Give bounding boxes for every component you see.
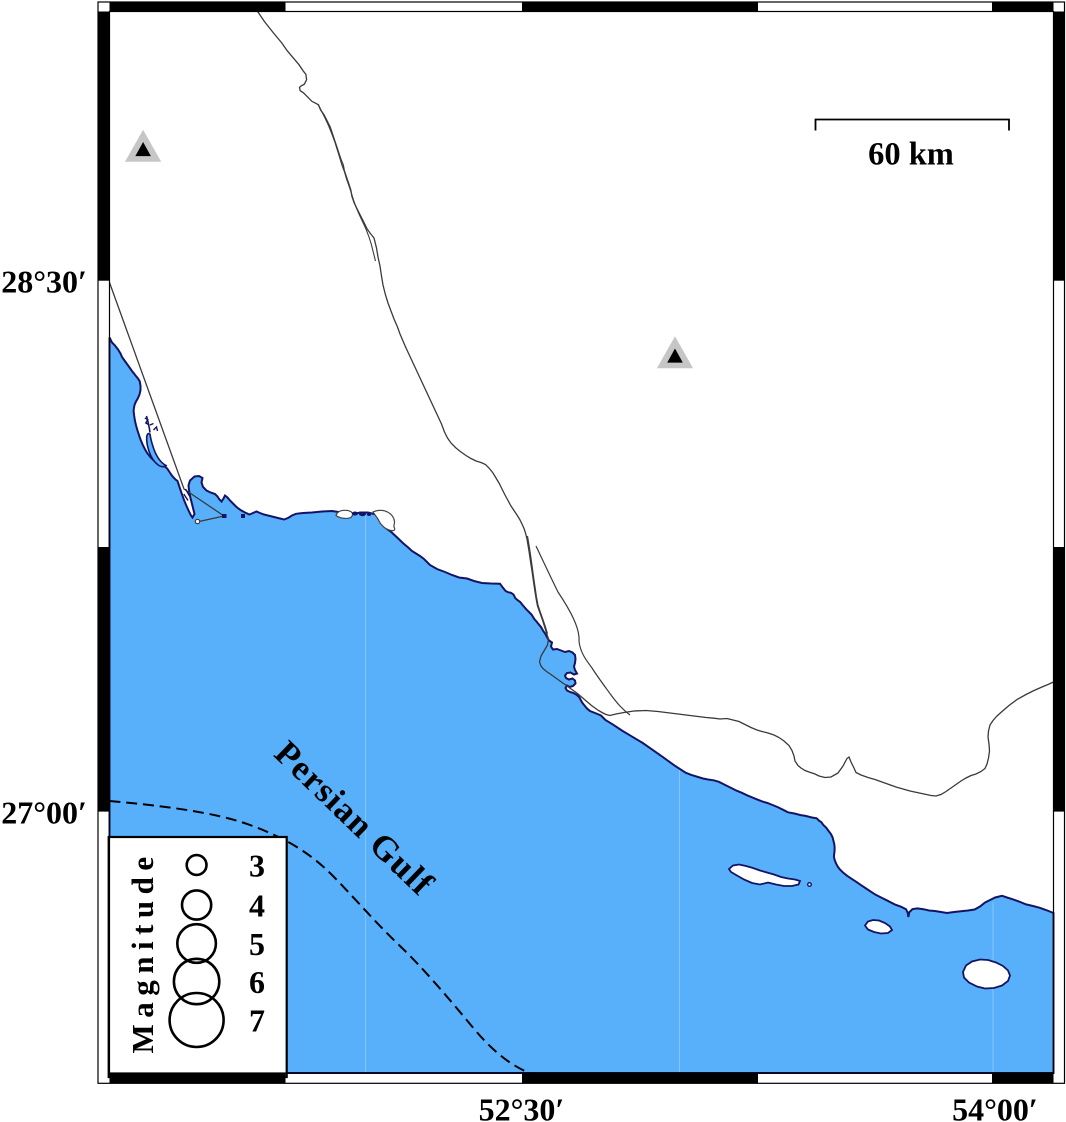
svg-text:4: 4: [249, 887, 265, 923]
svg-text:27°00′: 27°00′: [1, 795, 87, 831]
svg-text:60 km: 60 km: [868, 137, 954, 173]
svg-text:28°30′: 28°30′: [1, 264, 87, 300]
svg-text:6: 6: [249, 964, 265, 1000]
svg-text:7: 7: [249, 1002, 265, 1038]
svg-text:52°30′: 52°30′: [479, 1092, 565, 1122]
svg-text:5: 5: [249, 926, 265, 962]
svg-text:54°00′: 54°00′: [952, 1092, 1038, 1122]
svg-text:Magnitude: Magnitude: [125, 850, 160, 1053]
svg-text:3: 3: [249, 847, 265, 883]
